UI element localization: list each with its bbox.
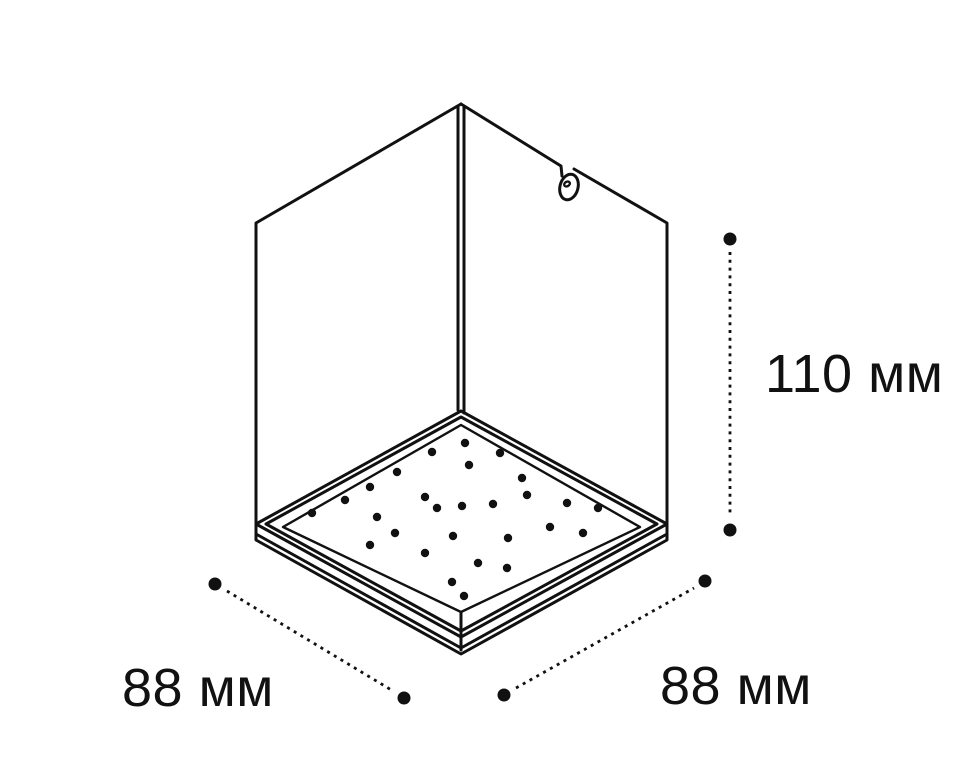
led-dot	[373, 513, 381, 521]
height-dim-endpoint-bottom	[724, 524, 737, 537]
width-label: 88 мм	[660, 656, 812, 716]
led-dot	[341, 496, 349, 504]
led-dot	[391, 529, 399, 537]
led-dot	[449, 532, 457, 540]
width-dim-endpoint-top	[699, 575, 712, 588]
led-dot	[546, 523, 554, 531]
led-dot	[465, 461, 473, 469]
cable-grommet-icon	[557, 172, 581, 202]
grommet-inner-hole	[563, 181, 570, 188]
led-dot	[433, 504, 441, 512]
fixture-dimension-diagram: 110 мм 88 мм 88 мм	[0, 0, 970, 783]
width-dimension: 88 мм	[498, 575, 812, 717]
height-dimension: 110 мм	[724, 233, 944, 537]
led-dot	[308, 509, 316, 517]
led-dot	[594, 504, 602, 512]
led-dot	[428, 448, 436, 456]
led-dot	[496, 449, 504, 457]
cube-left-edge	[256, 104, 461, 524]
width-dim-endpoint-bottom	[498, 689, 511, 702]
led-dot	[448, 578, 456, 586]
led-dot	[563, 499, 571, 507]
cube-right-edge	[574, 169, 667, 524]
cube-body	[256, 104, 667, 524]
grommet-outer-ring	[557, 172, 581, 202]
led-dot	[461, 439, 469, 447]
led-dot	[523, 491, 531, 499]
led-dot	[489, 500, 497, 508]
led-dot	[421, 493, 429, 501]
led-dot	[460, 592, 468, 600]
led-dot	[366, 541, 374, 549]
depth-dimension: 88 мм	[122, 578, 411, 719]
bottom-rim	[256, 411, 667, 654]
led-dot	[504, 534, 512, 542]
led-dot	[421, 549, 429, 557]
depth-dim-endpoint-bottom	[398, 692, 411, 705]
depth-dim-endpoint-top	[209, 578, 222, 591]
depth-label: 88 мм	[122, 658, 274, 718]
cube-right-edge-notch	[461, 104, 562, 176]
led-dot	[474, 559, 482, 567]
led-dot	[393, 468, 401, 476]
height-dim-endpoint-top	[724, 233, 737, 246]
led-dot	[579, 529, 587, 537]
led-dot	[366, 483, 374, 491]
led-dot	[458, 502, 466, 510]
led-dot	[518, 474, 526, 482]
height-label: 110 мм	[765, 344, 943, 404]
led-dot	[503, 564, 511, 572]
